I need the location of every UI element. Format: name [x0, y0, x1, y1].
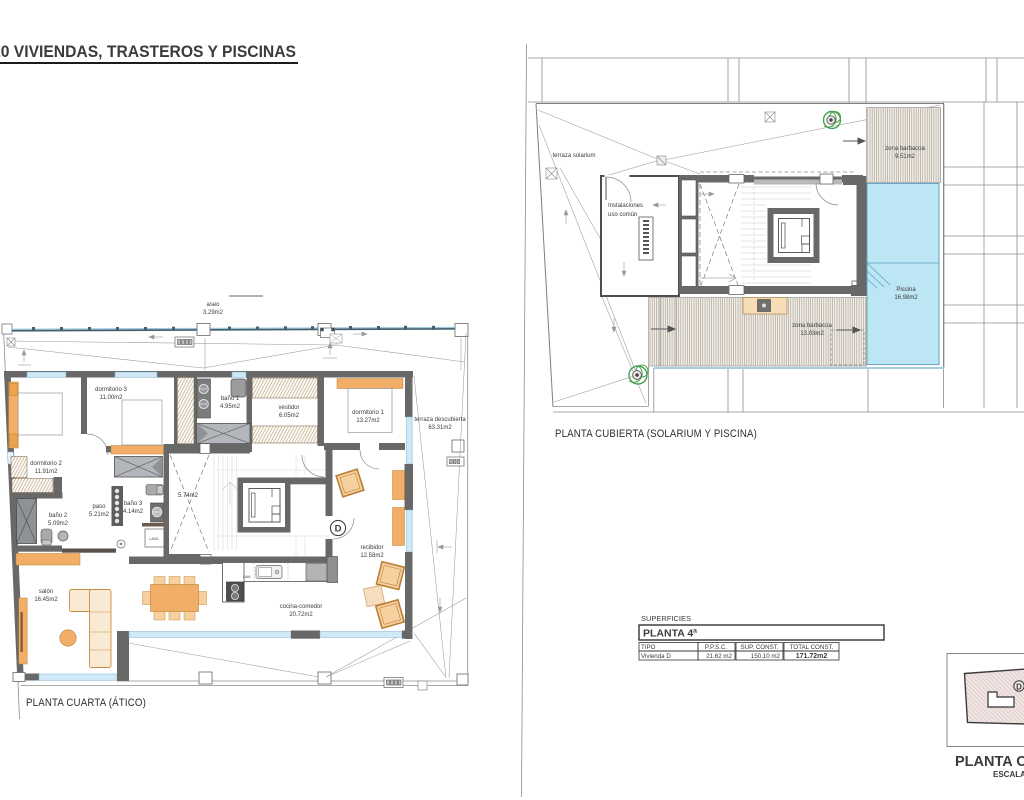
svg-text:zona barbacoa: zona barbacoa	[885, 146, 925, 152]
svg-text:salón: salón	[39, 589, 53, 595]
svg-text:PLANTA CUART: PLANTA CUART	[955, 754, 1024, 770]
svg-text:5.21m2: 5.21m2	[89, 512, 110, 518]
svg-text:baño 3: baño 3	[124, 501, 143, 507]
svg-text:11.91m2: 11.91m2	[35, 469, 59, 475]
svg-text:PLANTA CUBIERTA (SOLARIUM Y PI: PLANTA CUBIERTA (SOLARIUM Y PISCINA)	[555, 428, 757, 440]
svg-text:13.27m2: 13.27m2	[356, 418, 380, 424]
svg-text:P.P.S.C.: P.P.S.C.	[705, 644, 727, 651]
svg-text:11.00m2: 11.00m2	[100, 395, 124, 401]
svg-text:Vivienda D: Vivienda D	[641, 653, 671, 660]
svg-text:terraza descubierta: terraza descubierta	[414, 417, 466, 423]
svg-text:dormitorio 2: dormitorio 2	[30, 461, 62, 467]
svg-text:4.95m2: 4.95m2	[220, 404, 241, 410]
svg-text:5.74m2: 5.74m2	[178, 493, 199, 499]
svg-text:aseo: aseo	[206, 302, 220, 308]
svg-text:TOTAL CONST.: TOTAL CONST.	[790, 644, 834, 651]
svg-text:D: D	[335, 524, 342, 535]
svg-text:LAM: LAM	[243, 575, 250, 579]
svg-text:vestidor: vestidor	[278, 405, 299, 411]
svg-text:16.45m2: 16.45m2	[34, 597, 58, 603]
svg-text:20.72m2: 20.72m2	[289, 612, 313, 618]
svg-text:uso común: uso común	[608, 212, 637, 218]
svg-text:171.72m2: 171.72m2	[796, 653, 828, 660]
svg-text:ESCALA:1: ESCALA:1	[993, 770, 1024, 779]
svg-text:LAVD: LAVD	[150, 537, 159, 541]
svg-text:dormitorio 3: dormitorio 3	[95, 387, 127, 393]
svg-text:zona barbacoa: zona barbacoa	[792, 323, 832, 329]
svg-text:6.05m2: 6.05m2	[279, 413, 300, 419]
svg-text:paso: paso	[92, 504, 106, 510]
svg-text:D: D	[1016, 683, 1022, 692]
svg-text:recibidor: recibidor	[360, 545, 383, 551]
svg-text:SUP. CONST.: SUP. CONST.	[740, 644, 778, 651]
svg-text:Instalaciones: Instalaciones	[608, 203, 643, 209]
svg-text:5.09m2: 5.09m2	[48, 521, 69, 527]
svg-text:21.62 m2: 21.62 m2	[706, 653, 732, 660]
svg-text:PLANTA 4ª: PLANTA 4ª	[643, 628, 697, 640]
svg-text:16.98m2: 16.98m2	[894, 295, 918, 301]
svg-text:SUPERFICIES: SUPERFICIES	[641, 614, 691, 623]
svg-text:terraza solarium: terraza solarium	[552, 153, 595, 159]
svg-text:Piscina: Piscina	[896, 287, 916, 293]
svg-text:baño 2: baño 2	[49, 513, 68, 519]
svg-text:9.51m2: 9.51m2	[895, 154, 916, 160]
svg-text:3.29m2: 3.29m2	[203, 310, 224, 316]
svg-text:10 VIVIENDAS, TRASTEROS Y PISC: 10 VIVIENDAS, TRASTEROS Y PISCINAS	[0, 42, 296, 61]
svg-text:PLANTA CUARTA (ÁTICO): PLANTA CUARTA (ÁTICO)	[26, 696, 146, 709]
svg-text:4.14m2: 4.14m2	[123, 509, 144, 515]
svg-text:cocina-comedor: cocina-comedor	[280, 604, 323, 610]
svg-text:13.03m2: 13.03m2	[800, 331, 824, 337]
svg-text:dormitorio 1: dormitorio 1	[352, 410, 384, 416]
svg-text:TIPO: TIPO	[641, 644, 656, 651]
svg-text:12.58m2: 12.58m2	[360, 553, 384, 559]
svg-text:baño 1: baño 1	[221, 396, 240, 402]
svg-text:150.10 m2: 150.10 m2	[751, 653, 781, 660]
svg-text:63.31m2: 63.31m2	[428, 425, 452, 431]
